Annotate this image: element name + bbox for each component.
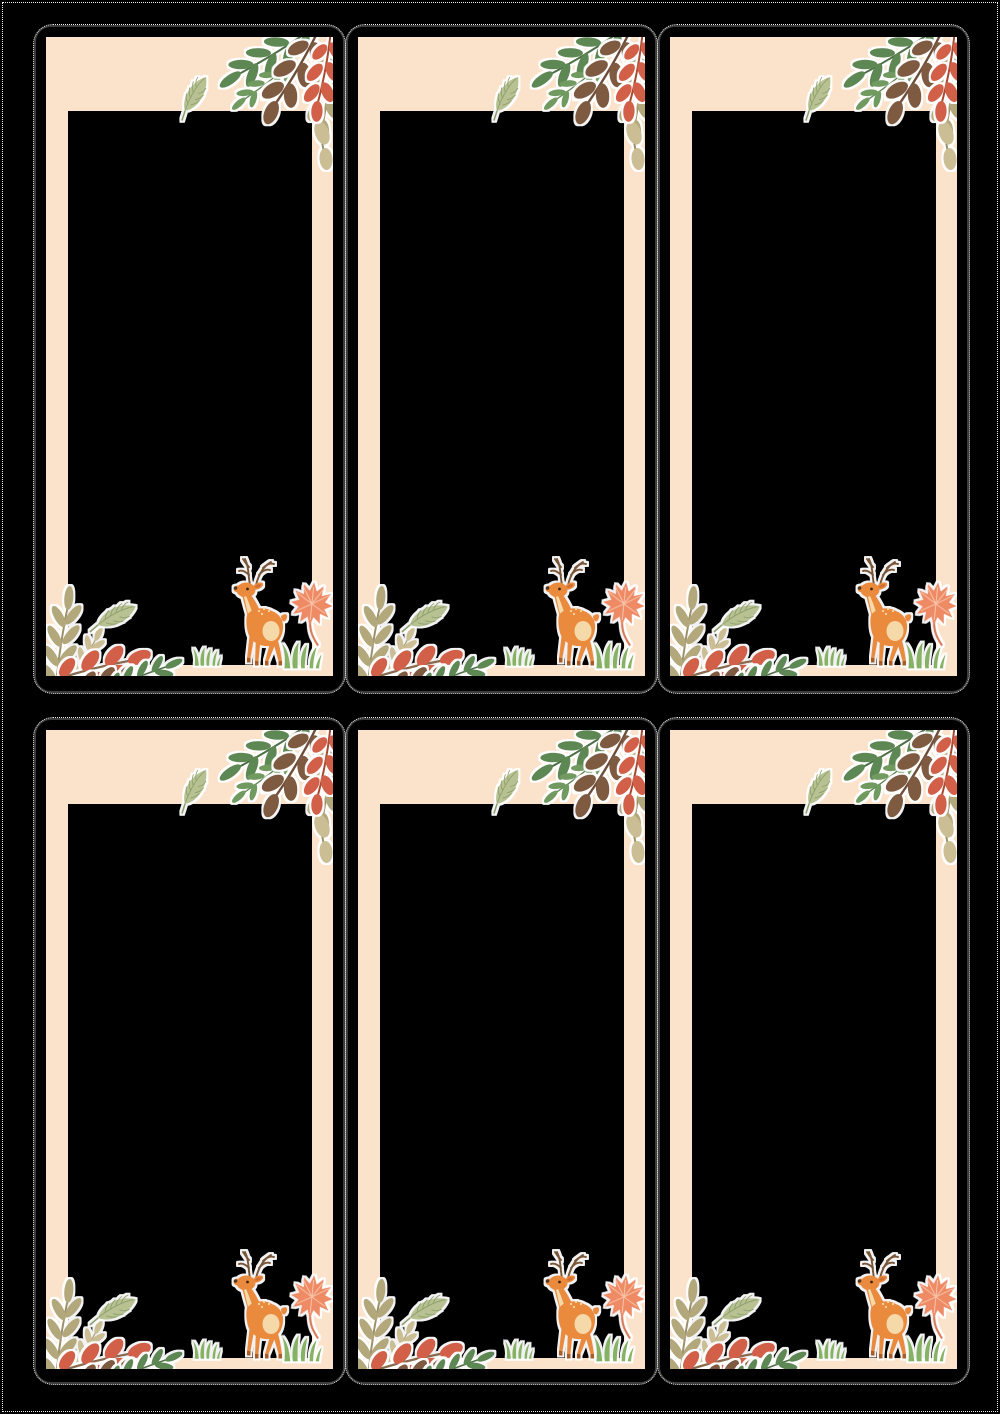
bookmark-card-2 — [346, 25, 657, 693]
bookmark-card-5 — [346, 718, 657, 1384]
card-artwork — [46, 37, 333, 676]
bookmark-card-3 — [658, 25, 969, 693]
bookmark-card-4 — [34, 718, 345, 1384]
template-sheet — [0, 0, 1000, 1414]
card-artwork — [358, 730, 645, 1369]
bookmark-card-6 — [658, 718, 969, 1384]
bookmark-card-1 — [34, 25, 345, 693]
card-artwork — [670, 37, 957, 676]
card-artwork — [670, 730, 957, 1369]
card-artwork — [46, 730, 333, 1369]
card-artwork — [358, 37, 645, 676]
